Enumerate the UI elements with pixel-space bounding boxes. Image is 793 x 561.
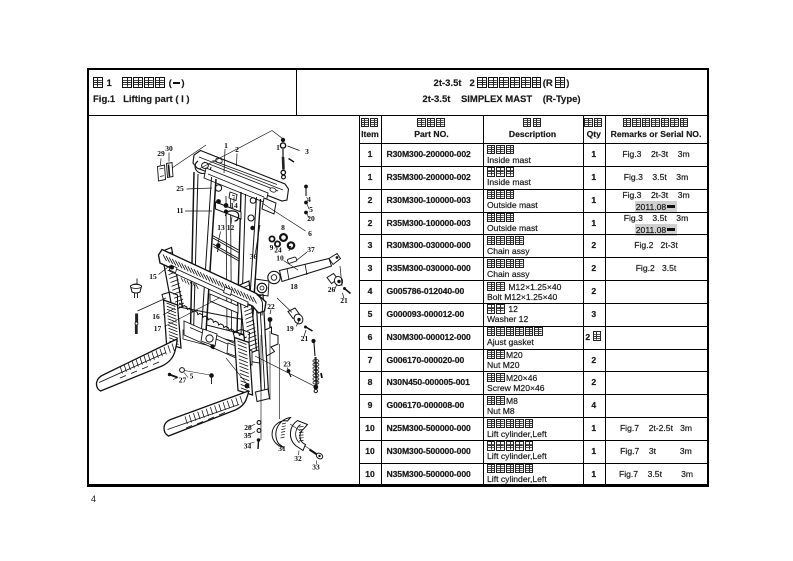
svg-text:1: 1 <box>276 143 280 152</box>
svg-text:16: 16 <box>152 312 160 321</box>
svg-text:21: 21 <box>340 296 348 305</box>
svg-text:17: 17 <box>154 324 162 333</box>
svg-text:1: 1 <box>224 141 228 150</box>
svg-text:8: 8 <box>281 223 285 232</box>
svg-text:12: 12 <box>227 223 235 232</box>
svg-text:14: 14 <box>230 201 238 210</box>
svg-text:7: 7 <box>288 244 292 253</box>
svg-text:15: 15 <box>149 272 157 281</box>
svg-text:35: 35 <box>244 431 252 440</box>
svg-text:11: 11 <box>176 206 183 215</box>
svg-text:5: 5 <box>309 205 313 214</box>
svg-text:36: 36 <box>250 252 258 261</box>
svg-text:18: 18 <box>290 282 298 291</box>
svg-text:19: 19 <box>286 324 294 333</box>
svg-text:30: 30 <box>165 144 173 153</box>
svg-text:22: 22 <box>267 302 275 311</box>
svg-text:37: 37 <box>307 245 315 254</box>
svg-text:9: 9 <box>270 243 274 252</box>
svg-text:32: 32 <box>294 454 302 463</box>
svg-text:4: 4 <box>307 195 311 204</box>
svg-text:27: 27 <box>179 376 187 385</box>
svg-text:29: 29 <box>157 149 165 158</box>
svg-text:21: 21 <box>301 334 309 343</box>
svg-text:20: 20 <box>307 214 315 223</box>
svg-text:26: 26 <box>328 285 336 294</box>
svg-text:5: 5 <box>190 372 194 381</box>
svg-text:13: 13 <box>217 223 225 232</box>
svg-text:23: 23 <box>283 360 291 369</box>
svg-text:25: 25 <box>176 184 184 193</box>
svg-text:34: 34 <box>244 442 252 451</box>
svg-text:10: 10 <box>276 254 284 263</box>
svg-text:2: 2 <box>235 145 239 154</box>
svg-text:31: 31 <box>278 444 286 453</box>
svg-text:6: 6 <box>308 229 312 238</box>
svg-text:3: 3 <box>305 147 309 156</box>
svg-text:33: 33 <box>312 463 320 472</box>
